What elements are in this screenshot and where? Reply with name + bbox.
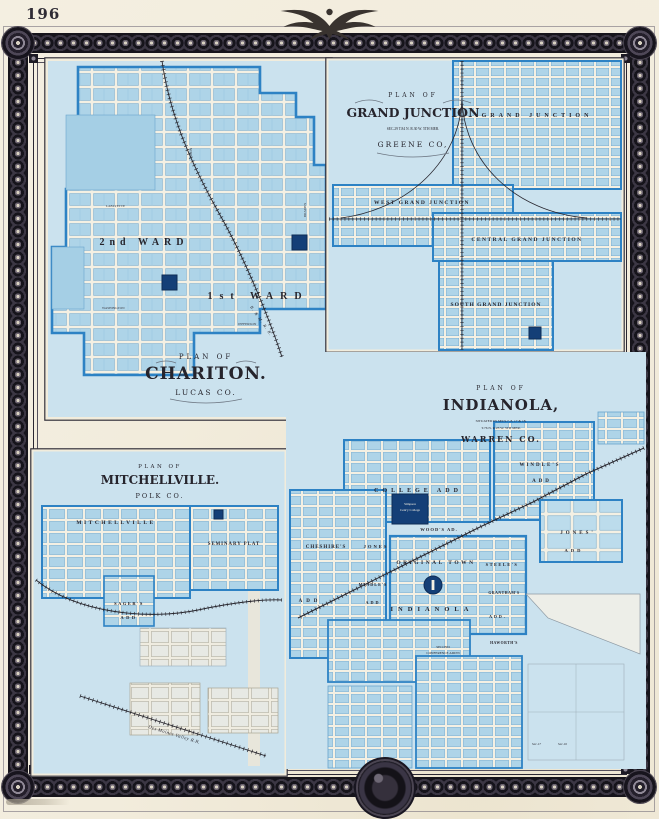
steeles-label: STEELE'S [486,562,519,567]
chain-border-left [8,43,28,797]
south-grid-label: SOUTH GRAND JUNCTION [451,302,542,308]
medallion-icon [358,761,412,815]
map-indianola: PLAN OF INDIANOLA, SITUATED IN SECS.7, 8… [286,352,646,773]
public-square-block [292,235,307,250]
gj-legal: SEC.29 T.84 N. R.30 W. 5TH MER. [387,127,439,131]
in-title: INDIANOLA, [443,396,560,414]
public-square-block [529,327,541,339]
street-label: JEFFERSON [238,322,257,326]
chariton-county: LUCAS CO. [175,388,236,397]
windles-label: WINDLE'S [519,463,560,468]
seminary-block [214,510,223,519]
outlot-grid [130,683,200,735]
page-number: 196 [26,5,60,23]
unplatted-block [52,247,84,309]
west-grid-label: WEST GRAND JUNCTION [374,200,470,206]
mv-title: MITCHELLVILLE. [101,473,219,487]
cheshires-add-label: ADD [299,599,322,604]
mv-town-label: MITCHELLVILLE [76,520,155,526]
south-grid-b [416,656,522,768]
chain-border-bottom [28,777,630,797]
section-label: Sec.17 [532,742,541,746]
street-label: WASHINGTON [102,306,125,310]
mv-sagers-add-label: ADD [120,615,137,620]
north-grid-label: GRAND JUNCTION [482,113,593,119]
granthams-add-label: ADD. [489,614,507,619]
gj-title: GRAND JUNCTION [346,105,479,120]
map-mitchellville: PLAN OF MITCHELLVILLE. POLK CO. MITCHELL… [30,448,288,777]
chariton-title: CHARITON. [145,364,267,384]
mv-county: POLK CO. [136,492,185,500]
seminary-grid [190,506,278,590]
public-square-block [162,275,177,290]
ne-grid [598,412,644,444]
mv-plan-of: PLAN OF [138,464,182,470]
section-label: Sec.16 [558,742,567,746]
conference-label-1: SECOND [436,645,450,649]
windles-add-label: ADD [532,479,552,484]
woods-label: WOOD'S AD. [420,527,458,532]
imprint-smudge [6,799,70,805]
mindles-add-label: ADD [365,600,380,605]
ward2-label: 2nd WARD [100,237,189,248]
mv-seminary-label: SEMINARY PLAT [208,542,260,547]
mv-sagers-label: SAGER'S [114,601,144,606]
frame-knob [29,54,38,63]
granthams-label: GRANTHAM'S [488,591,519,595]
jones-east-add-label: ADD [565,548,584,553]
haworths-label: HAWORTH'S [490,641,518,645]
south-grid-c [328,686,412,768]
college-name-l1: Simpson [404,502,416,506]
indianola-label: INDIANOLA [391,606,474,613]
college-name-l2: Cent'y College [400,508,421,512]
in-legal2: T.76 N. R.23 W. 5TH MER. [481,426,521,430]
eagle-icon [272,0,387,40]
in-plan-of: PLAN OF [476,385,526,392]
college-add-label: COLLEGE ADD [374,488,462,494]
mindles-label: MINDLE'S [359,582,388,587]
central-grid-label: CENTRAL GRAND JUNCTION [471,237,582,243]
jones-east-label: JONES' [560,531,596,536]
jones-label: JONES [364,544,389,549]
corner-rosette-icon [624,771,656,803]
ward1-label: 1st WARD [207,291,308,302]
north-grid [453,61,621,189]
street-label: BRADEN [303,203,307,217]
outlot-grid [208,688,278,733]
gj-county: GREENE CO, [378,140,449,149]
map-grand-junction: GRAND JUNCTION WEST GRAND JUNCTION CENTR… [325,57,625,353]
street-label: LAFAYETTE [106,204,125,208]
original-town-label: ORIGINAL TOWN [396,560,475,566]
south-grid [140,628,226,666]
cheshires-label: CHESHIRE'S [306,545,347,550]
gj-plan-of: PLAN OF [388,92,438,99]
in-county: WARREN CO. [460,434,541,444]
street-label: MAIN [189,147,193,157]
chariton-plan-of: PLAN OF [179,353,233,361]
atlas-page: 196 2nd WARD 1st WARD LAFAYETTE MAIN WAS… [0,0,659,819]
conference-label-2: CONFERENCE ADD'N [426,651,460,655]
courthouse-mark [432,580,435,590]
unplatted-block [66,115,155,190]
